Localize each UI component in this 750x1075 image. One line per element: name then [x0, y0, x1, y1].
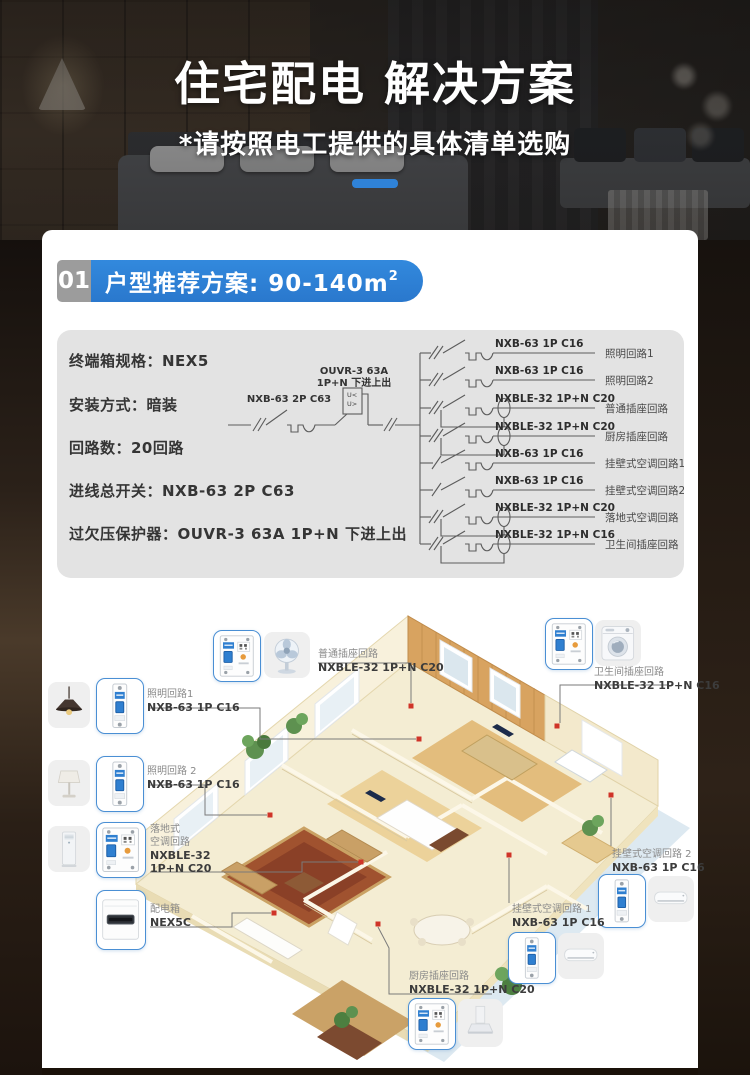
ouvr-u-greater: U> [347, 400, 357, 408]
callout-lighting-2: 照明回路 2 NXB-63 1P C16 [147, 765, 240, 791]
breaker-product-image [96, 678, 144, 734]
breaker-product-image [408, 998, 456, 1050]
callout-wall-ac-2: 挂壁式空调回路 2 NXB-63 1P C16 [612, 848, 705, 874]
branch-model: NXB-63 1P C16 [495, 448, 584, 460]
callout-general-socket: 普通插座回路 NXBLE-32 1P+N C20 [318, 648, 444, 674]
callout-model: NXBLE-32 1P+N C20 [318, 661, 444, 674]
callout-model: NEX5C [150, 916, 191, 929]
wall-ac-icon [558, 933, 604, 979]
fan-icon [264, 632, 310, 678]
ouvr-u-less: U< [347, 391, 357, 399]
chair [418, 938, 426, 946]
main-breaker-label: NXB-63 2P C63 [247, 394, 331, 405]
callout-name: 普通插座回路 [318, 648, 444, 661]
section-title-sup: 2 [389, 269, 399, 284]
section-title-text: 户型推荐方案: 90-140m [105, 264, 389, 298]
floor-ac-icon [48, 826, 90, 872]
callout-name: 挂壁式空调回路 1 [512, 903, 605, 916]
callout-name: 挂壁式空调回路 2 [612, 848, 705, 861]
ouvr-label-1: OUVR-3 63A [320, 366, 389, 377]
callout-floor-ac: 落地式 空调回路 NXBLE-32 1P+N C20 [150, 823, 211, 875]
breaker-product-image [213, 630, 261, 682]
next-section-edge [42, 1068, 698, 1075]
callout-wall-ac-1: 挂壁式空调回路 1 NXB-63 1P C16 [512, 903, 605, 929]
dark-overlay [0, 0, 750, 240]
callout-name: 空调回路 [150, 836, 211, 849]
wall-ac-icon [648, 876, 694, 922]
callout-model: NXB-63 1P C16 [147, 701, 240, 714]
range-hood-icon [458, 999, 503, 1047]
branch-circuit: 挂壁式空调回路2 [605, 484, 684, 497]
callout-lighting-1: 照明回路1 NXB-63 1P C16 [147, 688, 240, 714]
chair [458, 938, 466, 946]
branch-model: NXB-63 1P C16 [495, 365, 584, 377]
hero-banner: 住宅配电 解决方案 *请按照电工提供的具体清单选购 [0, 0, 750, 240]
branch-circuit: 普通插座回路 [605, 402, 668, 415]
circuit-diagram: U< U> NXB-63 2P C63 OUVR-3 63A 1P+N 下进上出… [57, 330, 684, 578]
branch-circuit: 照明回路2 [605, 374, 654, 387]
pendant-lamp-icon [48, 682, 90, 728]
callout-model: 1P+N C20 [150, 862, 211, 875]
callout-name: 照明回路 2 [147, 765, 240, 778]
breaker-product-image [598, 874, 646, 928]
chair [410, 918, 418, 926]
branch-circuit: 厨房插座回路 [605, 430, 668, 443]
breaker-product-image [545, 618, 593, 670]
callout-name: 配电箱 [150, 903, 191, 916]
page-subtitle: *请按照电工提供的具体清单选购 [0, 124, 750, 161]
branch-circuit: 卫生间插座回路 [605, 538, 679, 551]
callout-name: 照明回路1 [147, 688, 240, 701]
section-number: 01 [57, 260, 91, 302]
callout-model: NXBLE-32 [150, 849, 211, 862]
branch-circuit: 挂壁式空调回路1 [605, 457, 684, 470]
distribution-box-icon [96, 890, 146, 950]
photo-margin-right [698, 240, 750, 1075]
section-header: 01 户型推荐方案: 90-140m2 [57, 260, 423, 302]
callout-model: NXB-63 1P C16 [612, 861, 705, 874]
branch-circuit: 落地式空调回路 [605, 511, 679, 524]
callout-model: NXBLE-32 1P+N C16 [594, 679, 720, 692]
callout-name: 落地式 [150, 823, 211, 836]
callout-model: NXBLE-32 1P+N C20 [409, 983, 535, 996]
ouvr-label-2: 1P+N 下进上出 [317, 376, 392, 389]
callout-name: 厨房插座回路 [409, 970, 535, 983]
branch-model: NXB-63 1P C16 [495, 338, 584, 350]
callout-kitchen-socket: 厨房插座回路 NXBLE-32 1P+N C20 [409, 970, 535, 996]
breaker-product-image [96, 822, 146, 878]
callout-distribution-box: 配电箱 NEX5C [150, 903, 191, 929]
section-title: 户型推荐方案: 90-140m2 [91, 260, 423, 302]
callout-name: 卫生间插座回路 [594, 666, 720, 679]
table-lamp-icon [48, 760, 90, 806]
photo-margin-left [0, 240, 42, 1075]
branch-model: NXB-63 1P C16 [495, 475, 584, 487]
callout-model: NXB-63 1P C16 [147, 778, 240, 791]
branch-model: NXBLE-32 1P+N C20 [495, 421, 615, 433]
content-card: 01 户型推荐方案: 90-140m2 终端箱规格：NEX5 安装方式：暗装 回… [42, 230, 698, 1075]
callout-bathroom-socket: 卫生间插座回路 NXBLE-32 1P+N C16 [594, 666, 720, 692]
branch-model: NXBLE-32 1P+N C20 [495, 393, 615, 405]
spec-diagram-panel: 终端箱规格：NEX5 安装方式：暗装 回路数：20回路 进线总开关：NXB-63… [57, 330, 684, 578]
chair [466, 918, 474, 926]
callout-model: NXB-63 1P C16 [512, 916, 605, 929]
branch-model: NXBLE-32 1P+N C16 [495, 529, 615, 541]
accent-dash [352, 179, 398, 188]
page-title: 住宅配电 解决方案 [0, 48, 750, 114]
washing-machine-icon [595, 620, 641, 666]
branch-model: NXBLE-32 1P+N C20 [495, 502, 615, 514]
breaker-product-image [96, 756, 144, 812]
branch-circuit: 照明回路1 [605, 347, 654, 360]
